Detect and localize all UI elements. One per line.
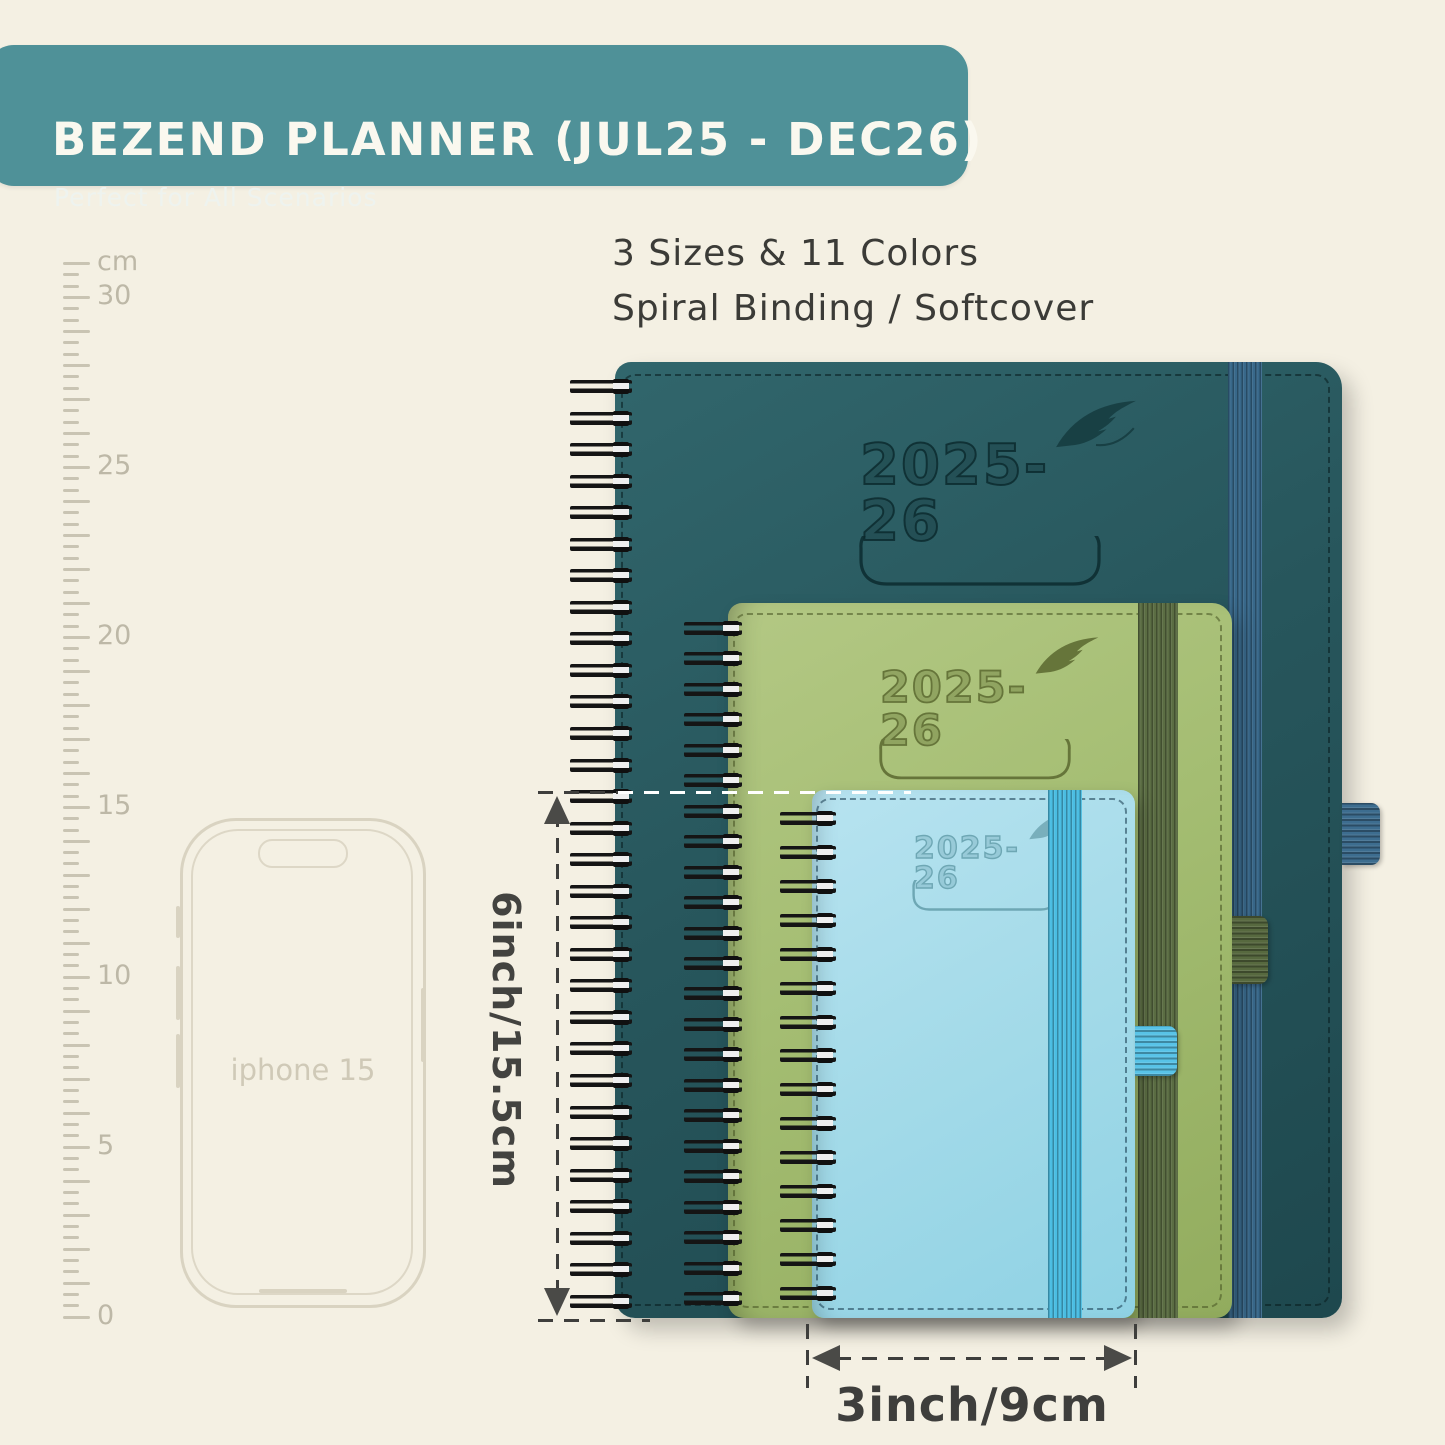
spiral-loop [684,927,742,940]
spiral-loop [780,1049,836,1062]
width-arrowhead-right [1104,1345,1132,1371]
spiral-loop [570,1011,632,1024]
iphone-label: iphone 15 [231,1053,376,1087]
ruler-tick [63,341,79,344]
ruler-tick [63,557,79,560]
height-top-guide-line [538,791,618,794]
width-arrowhead-left [812,1345,840,1371]
ruler-tick [63,1021,79,1024]
large-planner-pen-loop [1342,803,1380,865]
ruler-tick [63,1032,79,1035]
ruler-tick [63,1146,90,1149]
ruler: cm302520151050 [63,262,158,1320]
spiral-loop [780,1185,836,1198]
ruler-tick [63,1270,79,1273]
spiral-loop [684,1018,742,1031]
product-title: BEZEND PLANNER (JUL25 - DEC26) [52,113,983,166]
spiral-loop [780,1219,836,1232]
height-top-guide-line-on-cover [618,791,911,794]
large-planner-elastic-band [1228,362,1262,1318]
spiral-loop [570,1074,632,1087]
spiral-loop [684,987,742,1000]
logo-bracket [876,739,1074,793]
medium-planner-pen-loop [1232,916,1268,984]
ruler-tick [63,409,79,412]
medium-planner-spiral-binding [684,622,742,1305]
ruler-label: 0 [97,1300,114,1331]
ruler-tick [63,1055,79,1058]
spiral-loop [570,1295,632,1308]
ruler-tick [63,1214,90,1217]
ruler-tick [63,874,90,877]
ruler-tick [63,1066,79,1069]
ruler-tick [63,976,90,979]
ruler-label: 25 [97,450,131,481]
ruler-tick [63,1236,79,1239]
ruler-label: 20 [97,620,131,651]
ruler-tick [63,862,79,865]
height-arrowhead-down [544,1288,570,1316]
spiral-loop [684,1079,742,1092]
ruler-tick [63,443,79,446]
ruler-tick [63,455,79,458]
small-planner-pen-loop [1135,1026,1177,1076]
iphone-volume-down-button [176,1034,180,1088]
ruler-tick [63,1225,79,1228]
iphone-dynamic-island [258,839,348,868]
small-planner-elastic-band [1048,790,1082,1318]
spiral-loop [684,1140,742,1153]
spiral-loop [570,1263,632,1276]
ruler-tick [63,1089,79,1092]
spiral-loop [684,835,742,848]
ruler-tick [63,1282,90,1285]
ruler-label: 15 [97,790,131,821]
ruler-tick [63,930,79,933]
iphone-mute-switch [176,906,180,938]
ruler-tick [63,296,90,299]
spiral-loop [780,1083,836,1096]
ruler-tick [63,568,90,571]
ruler-tick [63,1259,79,1262]
iphone-outline: iphone 15 [180,818,426,1308]
height-dimension-label: 6inch/15.5cm [484,891,528,1189]
spiral-loop [684,1292,742,1305]
spiral-loop [570,1137,632,1150]
spiral-loop [570,885,632,898]
spiral-loop [684,774,742,787]
ruler-tick [63,942,90,945]
ruler-tick [63,489,79,492]
ruler-tick [63,647,79,650]
ruler-tick [63,375,79,378]
ruler-tick [63,761,79,764]
iphone-volume-up-button [176,966,180,1020]
ruler-tick [63,919,79,922]
spiral-loop [570,506,632,519]
ruler-tick [63,387,79,390]
spiral-loop [684,652,742,665]
spiral-loop [570,1042,632,1055]
ruler-label: 10 [97,960,131,991]
spiral-loop [570,979,632,992]
ruler-tick [63,953,79,956]
spiral-loop [684,1170,742,1183]
spiral-loop [570,948,632,961]
ruler-tick [63,262,90,265]
ruler-tick [63,285,79,288]
ruler-tick [63,908,90,911]
height-arrowhead-up [544,796,570,824]
ruler-tick [63,1316,90,1319]
ruler-tick [63,1100,79,1103]
ruler-tick [63,715,79,718]
spiral-loop [570,695,632,708]
logo-bracket [910,880,1060,921]
ruler-tick [63,364,90,367]
ruler-tick [63,432,90,435]
spiral-loop [684,622,742,635]
width-left-guide-line [806,1324,809,1388]
spiral-loop [780,846,836,859]
spiral-loop [780,812,836,825]
ruler-tick [63,659,79,662]
spiral-loop [570,443,632,456]
ruler-tick [63,670,90,673]
spiral-loop [570,1232,632,1245]
spiral-loop [570,475,632,488]
height-bottom-guide-line [538,1319,650,1322]
width-dimension-line [836,1357,1108,1360]
ruler-label: cm [97,246,138,277]
header-banner: BEZEND PLANNER (JUL25 - DEC26) Perfect f… [0,45,968,186]
ruler-label: 30 [97,280,131,311]
spiral-loop [684,896,742,909]
ruler-tick [63,523,79,526]
ruler-tick [63,964,79,967]
spiral-loop [684,744,742,757]
spiral-loop [570,601,632,614]
spiral-loop [570,916,632,929]
spiral-loop [684,1201,742,1214]
ruler-tick [63,829,79,832]
width-right-guide-line [1134,1324,1137,1388]
feather-icon [1054,398,1138,450]
ruler-tick [63,851,79,854]
spiral-loop [684,713,742,726]
iphone-power-button [421,988,425,1062]
large-planner-logo: 2025-26 [860,410,1100,602]
ruler-tick [63,817,79,820]
medium-planner-logo: 2025-26 [880,645,1070,793]
ruler-tick [63,625,79,628]
spiral-loop [570,380,632,393]
spiral-loop [570,569,632,582]
spiral-loop [570,412,632,425]
spiral-loop [570,759,632,772]
ruler-tick [63,795,79,798]
ruler-tick [63,783,79,786]
feather-icon [1034,635,1100,676]
ruler-label: 5 [97,1130,114,1161]
width-dimension-label: 3inch/9cm [835,1378,1109,1432]
spiral-loop [570,632,632,645]
ruler-tick [63,738,90,741]
spiral-loop [684,1231,742,1244]
ruler-tick [63,1168,79,1171]
ruler-tick [63,421,79,424]
ruler-tick [63,330,90,333]
ruler-tick [63,273,79,276]
spiral-loop [684,1109,742,1122]
ruler-tick [63,1191,79,1194]
ruler-tick [63,1010,90,1013]
ruler-tick [63,806,90,809]
ruler-tick [63,534,90,537]
ruler-tick [63,353,79,356]
iphone-home-indicator [259,1289,347,1293]
spiral-loop [684,957,742,970]
spiral-loop [780,1117,836,1130]
spiral-loop [780,948,836,961]
spiral-loop [780,1016,836,1029]
ruler-tick [63,636,90,639]
ruler-tick [63,693,79,696]
ruler-tick [63,998,79,1001]
small-planner-logo: 2025-26 [914,818,1056,921]
spiral-loop [684,866,742,879]
spiral-loop [570,538,632,551]
ruler-tick [63,591,79,594]
spiral-loop [780,1151,836,1164]
ruler-tick [63,987,79,990]
medium-planner-elastic-band [1138,603,1178,1318]
logo-bracket [855,536,1105,602]
spiral-loop [780,914,836,927]
spiral-loop [570,727,632,740]
spiral-loop [570,1169,632,1182]
spiral-loop [780,982,836,995]
spiral-loop [570,822,632,835]
spiral-loop [570,664,632,677]
ruler-tick [63,466,90,469]
ruler-tick [63,579,79,582]
ruler-tick [63,1304,79,1307]
ruler-tick [63,681,79,684]
large-planner-spiral-binding [570,380,632,1308]
spiral-loop [684,1262,742,1275]
small-planner-spiral-binding [780,812,836,1300]
spiral-loop [780,880,836,893]
ruler-tick [63,307,79,310]
ruler-tick [63,1180,90,1183]
ruler-tick [63,749,79,752]
ruler-tick [63,1157,79,1160]
ruler-tick [63,1044,90,1047]
spiral-loop [684,1048,742,1061]
ruler-tick [63,500,90,503]
ruler-tick [63,1202,79,1205]
ruler-tick [63,772,90,775]
ruler-tick [63,1078,90,1081]
ruler-tick [63,613,79,616]
ruler-tick [63,896,79,899]
ruler-tick [63,1293,79,1296]
height-dimension-line [556,812,559,1300]
ruler-tick [63,885,79,888]
ruler-tick [63,511,79,514]
ruler-tick [63,398,90,401]
ruler-tick [63,704,90,707]
ruler-tick [63,727,79,730]
spiral-loop [684,683,742,696]
spiral-loop [780,1287,836,1300]
ruler-tick [63,1112,90,1115]
sizes-colors-text: 3 Sizes & 11 Colors [612,233,979,274]
ruler-tick [63,545,79,548]
ruler-tick [63,1123,79,1126]
spiral-loop [570,1106,632,1119]
ruler-tick [63,602,90,605]
binding-cover-text: Spiral Binding / Softcover [612,288,1094,329]
year-label: 2025-26 [860,438,1100,550]
ruler-tick [63,319,79,322]
product-subtitle: Perfect for All Scenarios [54,183,378,212]
spiral-loop [780,1253,836,1266]
ruler-tick [63,1134,79,1137]
ruler-tick [63,477,79,480]
product-infographic: BEZEND PLANNER (JUL25 - DEC26) Perfect f… [0,0,1445,1445]
ruler-tick [63,840,90,843]
spiral-loop [570,1200,632,1213]
small-planner-cover: 2025-26 [812,790,1135,1318]
ruler-tick [63,1248,90,1251]
spiral-loop [684,805,742,818]
spiral-loop [570,853,632,866]
